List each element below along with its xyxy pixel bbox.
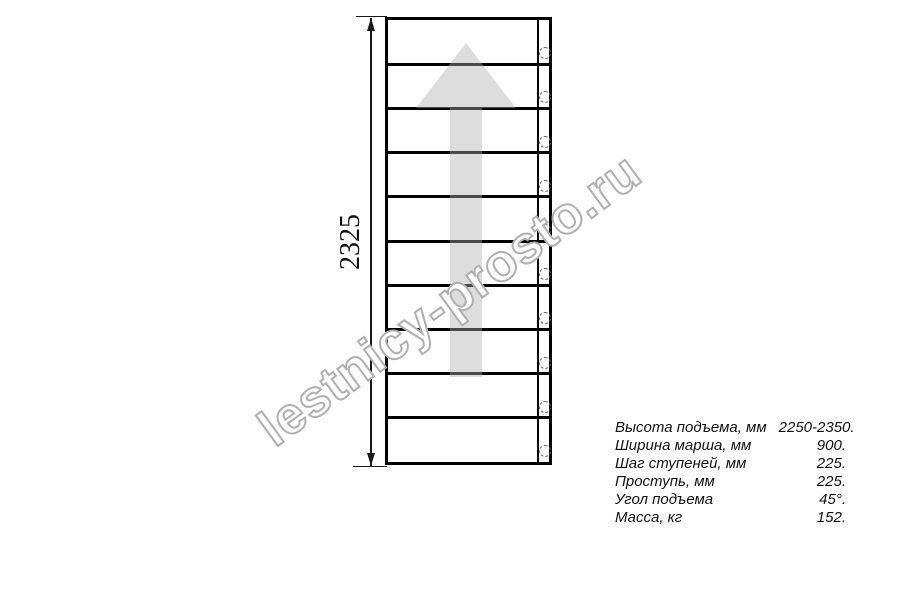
dimension-line [370,18,372,466]
spec-label: Ширина марша, мм [615,437,751,455]
spec-row: Масса, кг152. [615,509,846,527]
spec-table: Высота подъема, мм2250-2350.Ширина марша… [615,419,846,527]
bolt-circle-icon [539,401,551,413]
spec-row: Шаг ступеней, мм225. [615,455,846,473]
bolt-circle-icon [539,357,551,369]
extension-line-top [356,16,387,17]
bolt-circle-icon [539,136,551,148]
bolt-circle-icon [539,268,551,280]
spec-row: Проступь, мм225. [615,473,846,491]
bolt-circle-icon [539,224,551,236]
spec-value: 2250-2350. [779,419,855,437]
spec-label: Проступь, мм [615,473,715,491]
spec-label: Угол подъема [615,491,713,509]
spec-value: 900. [817,437,846,455]
bolt-circle-icon [539,312,551,324]
extension-line-bottom [353,466,387,467]
spec-label: Шаг ступеней, мм [615,455,746,473]
dimension-label: 2325 [336,182,366,302]
spec-row: Высота подъема, мм2250-2350. [615,419,846,437]
spec-value: 152. [817,509,846,527]
bolt-circle-icon [539,445,551,457]
step-line [388,416,549,419]
spec-row: Угол подъема45°. [615,491,846,509]
bolt-circle-icon [539,91,551,103]
spec-label: Высота подъема, мм [615,419,767,437]
bolt-circle-icon [539,180,551,192]
bolt-circle-icon [539,47,551,59]
spec-value: 225. [817,455,846,473]
spec-label: Масса, кг [615,509,682,527]
spec-row: Ширина марша, мм900. [615,437,846,455]
dimension-arrowhead-bottom-icon [367,453,375,466]
spec-value: 45°. [819,491,846,509]
dimension-arrowhead-top-icon [367,18,375,31]
drawing-canvas: 2325 lestnicy-prosto.ru Высота подъема, … [0,0,900,600]
spec-value: 225. [817,473,846,491]
